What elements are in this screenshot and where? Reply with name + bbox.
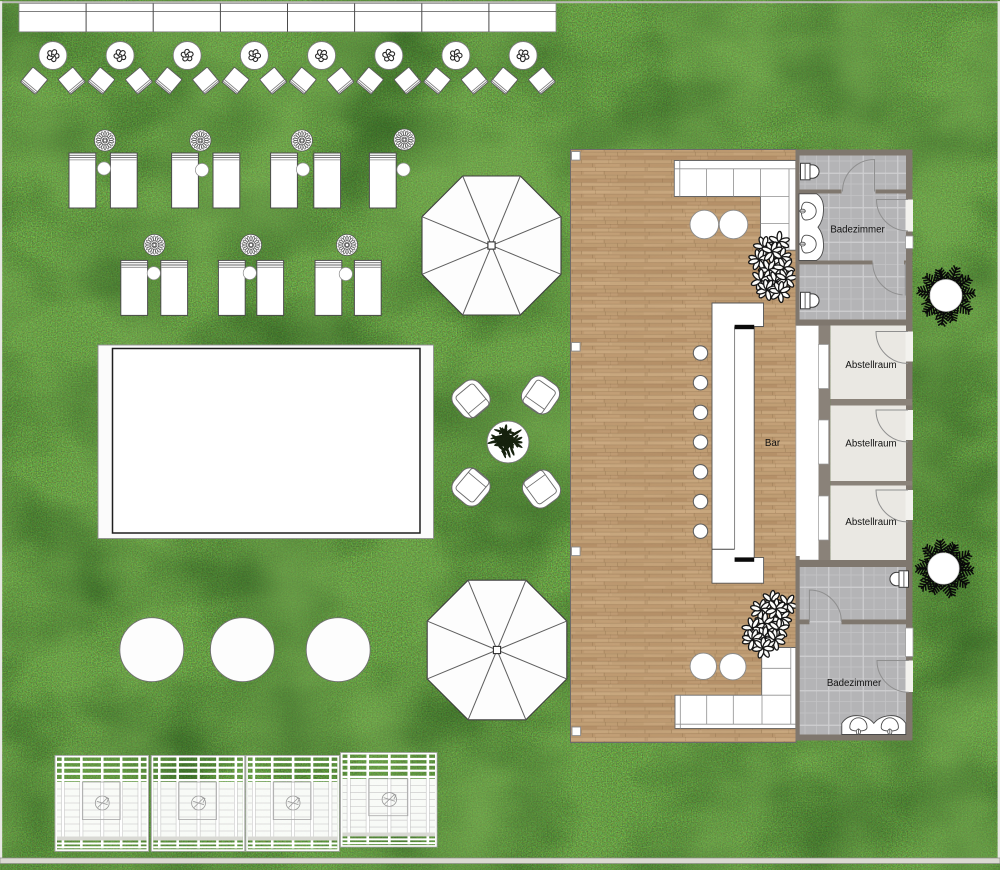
svg-text:Badezimmer: Badezimmer — [827, 678, 882, 689]
svg-text:Abstellraum: Abstellraum — [845, 517, 896, 528]
svg-text:Abstellraum: Abstellraum — [845, 360, 896, 371]
svg-text:Badezimmer: Badezimmer — [830, 224, 885, 235]
svg-text:Bar: Bar — [765, 438, 781, 449]
svg-text:Abstellraum: Abstellraum — [845, 439, 896, 450]
